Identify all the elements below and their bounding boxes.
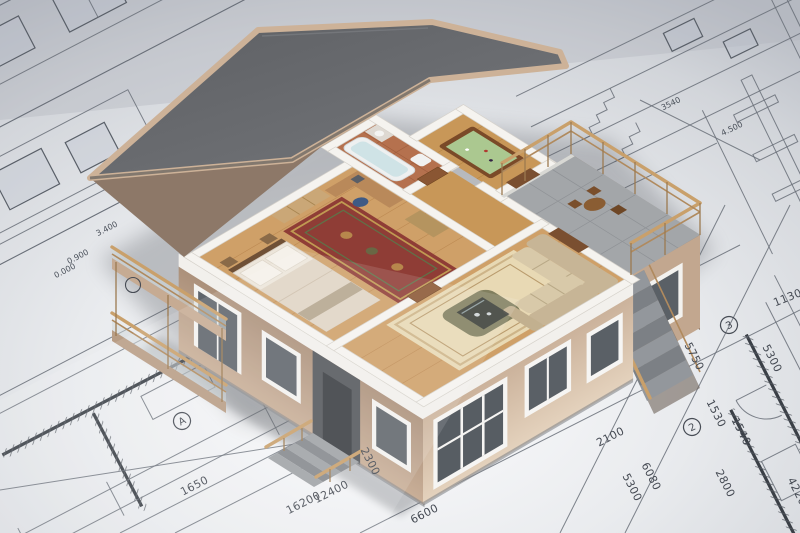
render-canvas: 1650 16200 12400 2300 6600 2100 5300 608…: [0, 0, 800, 533]
architectural-render-scene: 1650 16200 12400 2300 6600 2100 5300 608…: [0, 0, 800, 533]
